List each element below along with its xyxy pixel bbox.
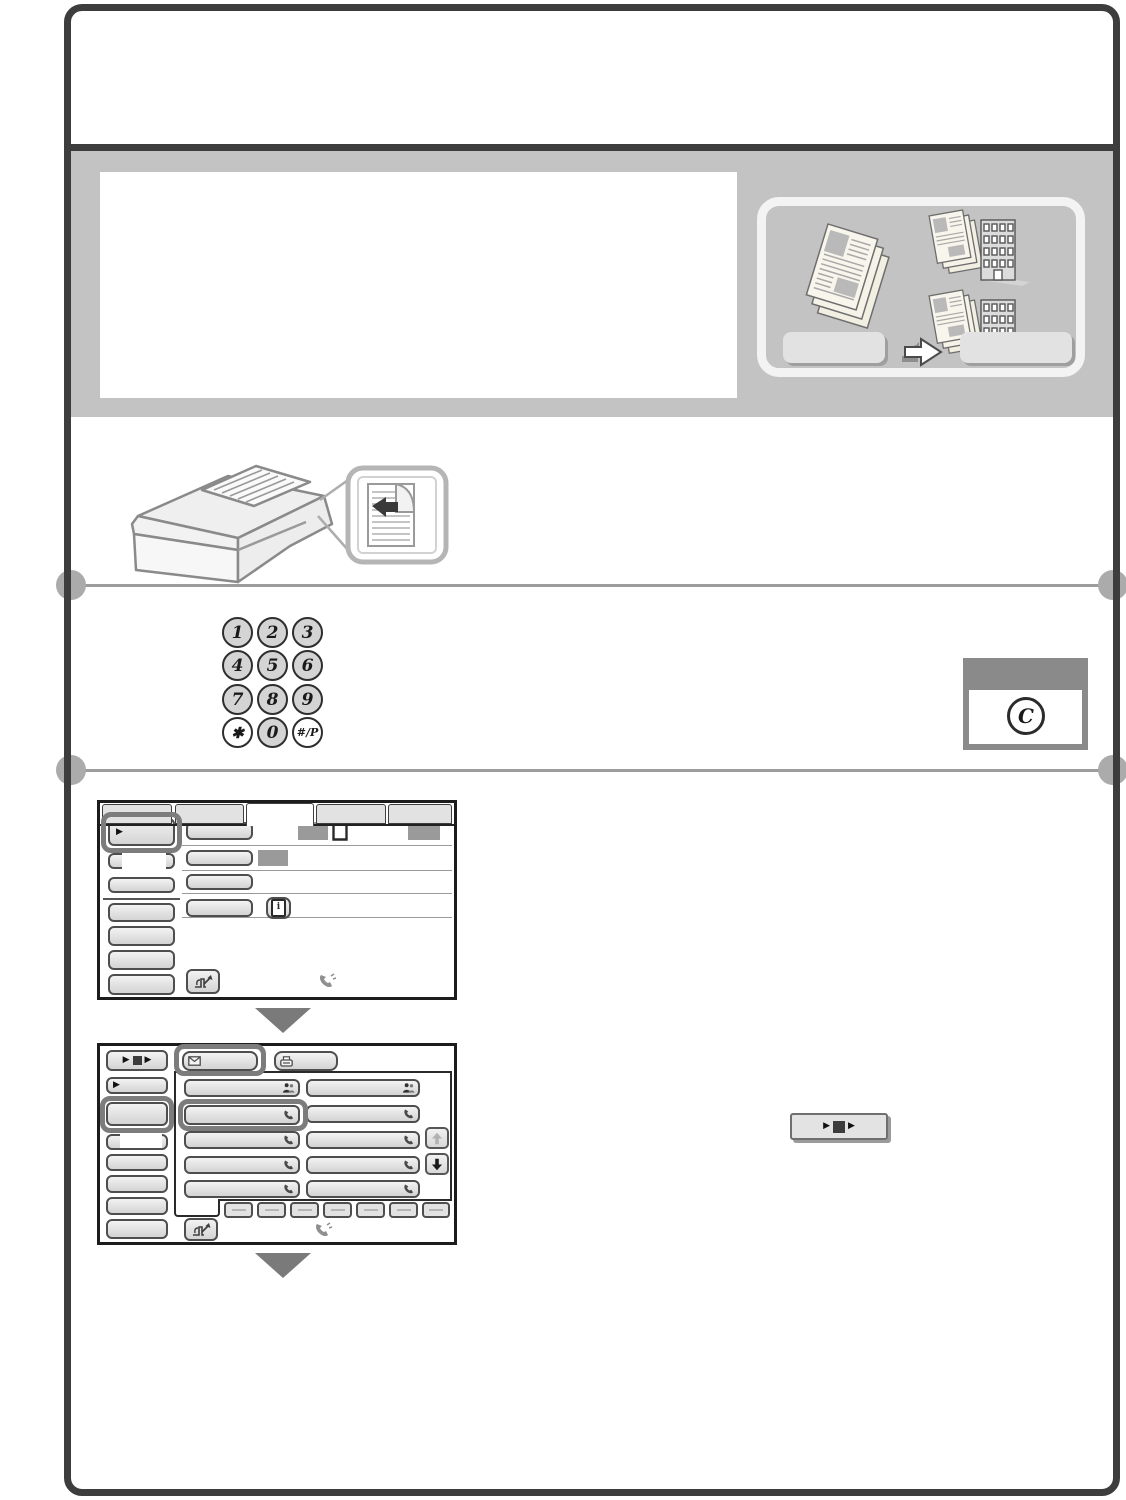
play-triangle-icon: ▶ <box>823 1122 830 1131</box>
setting-key-row2[interactable] <box>186 850 253 866</box>
direct-entry-key[interactable] <box>186 969 220 994</box>
phone-handset-icon <box>403 1134 415 1146</box>
sidebar-key-3[interactable] <box>108 877 175 893</box>
step-down-arrow <box>255 1008 311 1033</box>
index-tab[interactable] <box>224 1202 253 1218</box>
group-key-1[interactable] <box>184 1079 300 1097</box>
rule-dot <box>56 755 86 785</box>
job-status-key-inline: ▶▶ <box>790 1113 888 1140</box>
direct-entry-key[interactable] <box>184 1218 218 1241</box>
rule-dot <box>1098 755 1126 785</box>
hand-pen-icon <box>193 974 213 990</box>
scroll-down-key[interactable] <box>425 1153 449 1175</box>
keypad-key-1[interactable]: 1 <box>222 617 253 648</box>
one-touch-key-5[interactable] <box>184 1156 300 1174</box>
play-triangle-icon: ▶ <box>145 1056 152 1065</box>
stop-square-icon <box>833 1121 845 1133</box>
caption-buttons <box>783 332 1075 366</box>
sidebar-key-5[interactable] <box>106 1175 168 1193</box>
screen1-tab-5[interactable] <box>388 804 452 824</box>
sidebar-key-4[interactable] <box>106 1154 168 1171</box>
section-rule-1 <box>78 584 1106 587</box>
section-rule-2 <box>78 769 1106 772</box>
index-tab-active[interactable] <box>174 1199 220 1217</box>
index-tab-dash <box>265 1209 279 1211</box>
highlight-sidebar-key <box>100 1096 174 1133</box>
index-tab-dash <box>397 1209 411 1211</box>
index-tab[interactable] <box>257 1202 286 1218</box>
phone-handset-icon <box>283 1134 295 1146</box>
banner-text-box <box>100 172 737 398</box>
phone-handset-icon <box>403 1183 415 1195</box>
clear-key-callout: C <box>963 658 1088 750</box>
keypad-key-2[interactable]: 2 <box>257 617 288 648</box>
row-divider <box>182 917 452 918</box>
index-tab[interactable] <box>356 1202 385 1218</box>
up-arrow-icon <box>431 1132 443 1145</box>
job-status-key[interactable]: ▶▶ <box>106 1050 168 1071</box>
sidebar-key-4[interactable] <box>108 903 175 922</box>
play-triangle-icon: ▶ <box>848 1122 855 1131</box>
screen1-tab-2[interactable] <box>175 804 244 824</box>
group-key-2[interactable] <box>306 1079 420 1097</box>
one-touch-key-3[interactable] <box>184 1131 300 1149</box>
clear-key-callout-header <box>969 664 1082 690</box>
fax-settings-screen: ▶ i <box>97 800 457 1000</box>
fax-broadcast-illustration <box>766 206 1076 368</box>
down-arrow-icon <box>431 1158 443 1171</box>
setting-key-row3[interactable] <box>186 874 253 890</box>
fax-broadcast-illustration-panel <box>757 197 1085 377</box>
keypad-key-8[interactable]: 8 <box>257 684 288 715</box>
one-touch-key-8[interactable] <box>306 1180 420 1198</box>
highlight-one-touch-key <box>178 1099 308 1131</box>
mfp-machine-illustration <box>110 450 450 585</box>
info-key[interactable]: i <box>266 897 291 919</box>
index-tab[interactable] <box>323 1202 352 1218</box>
address-book-screen: ▶▶ ▶ <box>97 1043 457 1245</box>
keypad-key-3[interactable]: 3 <box>292 617 323 648</box>
screen1-tab-4[interactable] <box>316 804 386 824</box>
sidebar-key-7[interactable] <box>108 974 175 995</box>
one-touch-key-6[interactable] <box>306 1156 420 1174</box>
phone-handset-icon <box>403 1108 415 1120</box>
rule-dot <box>1098 570 1126 600</box>
info-icon: i <box>271 899 286 917</box>
phone-handset-icon <box>403 1159 415 1171</box>
clear-key[interactable]: C <box>1007 697 1045 735</box>
index-tab[interactable] <box>290 1202 319 1218</box>
status-value-block <box>258 850 288 866</box>
fax-tab[interactable] <box>274 1051 338 1071</box>
hand-pen-icon <box>191 1222 211 1238</box>
sidebar-key-6[interactable] <box>106 1197 168 1215</box>
row-divider <box>182 893 452 894</box>
highlight-address-tab <box>174 1044 266 1076</box>
sidebar-condition-key[interactable]: ▶ <box>106 1077 168 1094</box>
sidebar-key-7[interactable] <box>106 1219 168 1239</box>
row-divider <box>182 870 452 871</box>
keypad-key-6[interactable]: 6 <box>292 650 323 681</box>
phone-check-icon <box>318 972 338 989</box>
stop-square-icon <box>133 1056 142 1065</box>
phone-handset-icon <box>283 1159 295 1171</box>
one-touch-key-7[interactable] <box>184 1180 300 1198</box>
screen1-tab-3-active[interactable] <box>246 803 314 826</box>
rule-dot <box>56 570 86 600</box>
sidebar-separator <box>103 898 180 900</box>
sidebar-key-5[interactable] <box>108 926 175 946</box>
index-tab[interactable] <box>389 1202 418 1218</box>
keypad-key-5[interactable]: 5 <box>257 650 288 681</box>
keypad-key-star[interactable]: ✱ <box>222 717 253 748</box>
scroll-up-key[interactable] <box>425 1127 449 1149</box>
play-triangle-icon: ▶ <box>113 1081 120 1090</box>
phone-check-icon <box>314 1221 334 1238</box>
fax-machine-icon <box>280 1056 293 1067</box>
index-tab-dash <box>298 1209 312 1211</box>
index-tab-dash <box>429 1209 443 1211</box>
row-divider <box>182 845 452 846</box>
one-touch-key-4[interactable] <box>306 1131 420 1149</box>
phone-handset-icon <box>283 1183 295 1195</box>
header-divider-bar <box>64 144 1120 151</box>
keypad-key-0[interactable]: 0 <box>257 717 288 748</box>
sidebar-key-6[interactable] <box>108 950 175 970</box>
index-tab-dash <box>364 1209 378 1211</box>
document-turn-icon <box>368 484 414 546</box>
keypad-key-9[interactable]: 9 <box>292 684 323 715</box>
index-tab-dash <box>232 1209 246 1211</box>
keypad-key-4[interactable]: 4 <box>222 650 253 681</box>
index-tab[interactable] <box>422 1202 450 1218</box>
group-people-icon <box>402 1082 415 1094</box>
setting-key-row4[interactable] <box>186 899 253 917</box>
highlight-address-book-key <box>101 812 182 853</box>
keypad-key-7[interactable]: 7 <box>222 684 253 715</box>
group-people-icon <box>282 1082 295 1094</box>
one-touch-key-2[interactable] <box>306 1105 420 1123</box>
play-triangle-icon: ▶ <box>123 1056 130 1065</box>
index-tab-dash <box>331 1209 345 1211</box>
keypad-key-hash-p[interactable]: #/P <box>292 717 323 748</box>
step-down-arrow <box>255 1253 311 1278</box>
